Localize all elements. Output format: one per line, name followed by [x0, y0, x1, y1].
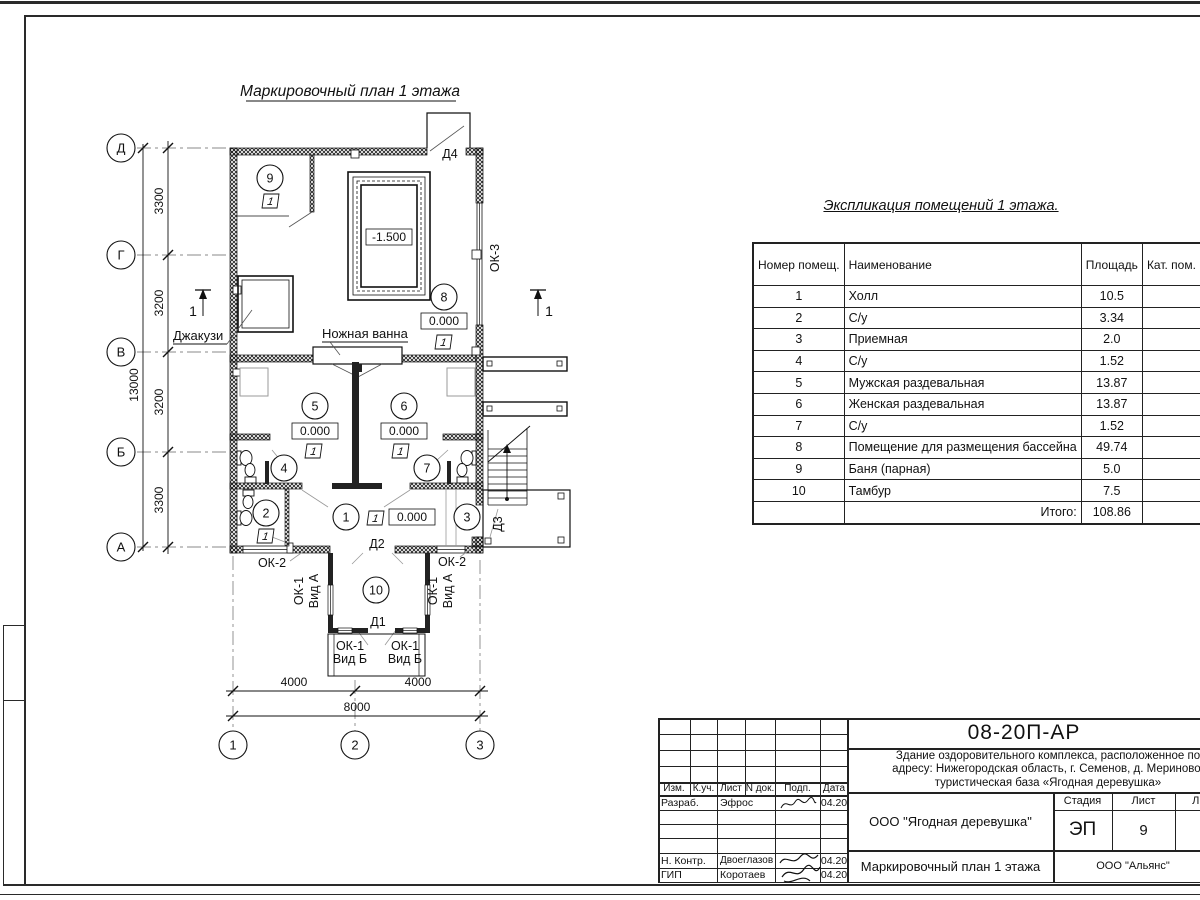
tb-date-nkontr: 04.20: [820, 853, 848, 868]
axis-label-2: 2: [351, 738, 358, 753]
toilet-bowl: [243, 496, 253, 509]
svg-text:Джакузи: Джакузи: [173, 328, 223, 343]
window-ok3-label: ОК-3: [488, 244, 502, 272]
window-ok1a-left-label1: ОК-1: [292, 577, 306, 605]
tb-role-razrab: Разраб.: [658, 795, 720, 810]
sink: [240, 511, 252, 526]
axis-bubbles-bottom: 1 2 3: [219, 731, 494, 759]
sheets-header: Листов: [1175, 792, 1200, 810]
contractor-organization: ООО "Альянс": [1053, 850, 1200, 882]
tb-col-kuch: К.уч.: [690, 782, 717, 795]
sheet-header: Лист: [1112, 792, 1175, 810]
table-row: 2С/у3.34: [753, 307, 1200, 329]
drawing-name: Маркировочный план 1 этажа: [848, 850, 1053, 882]
svg-text:Ножная ванна: Ножная ванна: [322, 326, 409, 341]
dim-bottom-2: 4000: [405, 675, 432, 689]
window-ok1a-right-label2: Вид А: [441, 573, 455, 608]
dim-left-2: 3200: [152, 289, 166, 316]
toilet-tank: [245, 477, 256, 483]
project-description: Здание оздоровительного комплекса, распо…: [848, 748, 1200, 792]
door-d4-label: Д4: [442, 147, 457, 161]
dim-left-4: 3300: [152, 486, 166, 513]
svg-text:2: 2: [263, 507, 270, 521]
svg-text:4: 4: [281, 462, 288, 476]
total-label: Итого:: [844, 501, 1081, 523]
svg-text:-1.500: -1.500: [372, 230, 406, 244]
window-ok3: [472, 203, 482, 325]
table-row: 9Баня (парная)5.0: [753, 458, 1200, 480]
window-ok2-right: [437, 546, 465, 553]
tb-date-gip: 04.20: [820, 868, 848, 882]
table-row: 7С/у1.52: [753, 415, 1200, 437]
tb-col-izm: Изм.: [658, 782, 690, 795]
toilet-bowl: [245, 464, 255, 477]
svg-text:1: 1: [343, 511, 350, 525]
svg-text:0.000: 0.000: [300, 424, 330, 438]
table-row: 8Помещение для размещения бассейна49.74: [753, 437, 1200, 459]
svg-text:Д2: Д2: [369, 537, 384, 551]
svg-text:5: 5: [312, 400, 319, 414]
svg-text:0.000: 0.000: [397, 510, 427, 524]
window-ok1a-right-label1: ОК-1: [426, 577, 440, 605]
dim-left-3: 3200: [152, 388, 166, 415]
total-value: 108.86: [1081, 501, 1142, 523]
benches: [483, 357, 567, 416]
axis-label-g: Г: [117, 248, 124, 263]
explication-title: Экспликация помещений 1 этажа.: [752, 198, 1130, 214]
svg-text:7: 7: [424, 462, 431, 476]
table-row: 3Приемная2.0: [753, 329, 1200, 351]
tb-name-razrab: Эфрос: [717, 795, 778, 810]
jacuzzi-label: Джакузи: [173, 310, 252, 344]
dim-left-1: 3300: [152, 187, 166, 214]
svg-text:3: 3: [464, 511, 471, 525]
toilet-tank: [457, 477, 468, 483]
title-block: Изм. К.уч. Лист N док. Подп. Дата Разраб…: [658, 718, 1200, 883]
axis-bubbles-left: Д Г В Б А: [107, 134, 135, 561]
svg-text:1: 1: [189, 303, 197, 319]
axis-label-a: А: [117, 540, 126, 555]
client-organization: ООО "Ягодная деревушка": [848, 792, 1053, 850]
stage-header: Стадия: [1053, 792, 1112, 810]
shower-tray-right: [447, 368, 475, 396]
window-ok1b-left-label1: ОК-1: [336, 639, 364, 653]
col-header-number: Номер помещ.: [753, 243, 844, 286]
tb-col-podp: Подп.: [775, 782, 820, 795]
sheet-number: 9: [1112, 810, 1175, 850]
svg-text:0.000: 0.000: [389, 424, 419, 438]
svg-text:10: 10: [369, 584, 383, 598]
document-number: 08-20П-АР: [848, 718, 1200, 748]
tb-col-list: Лист: [717, 782, 745, 795]
door-d3-label: Д3: [491, 516, 505, 531]
axis-label-d: Д: [117, 141, 126, 156]
window-ok1b-left-label2: Вид Б: [333, 652, 367, 666]
dim-left-total: 13000: [127, 368, 141, 402]
door-d2-label: Д2: [363, 536, 391, 551]
stairs: [488, 426, 530, 505]
tb-date-razrab: 04.20: [820, 795, 848, 810]
table-total-row: Итого:108.86: [753, 501, 1200, 523]
table-row: 10Тамбур7.5: [753, 480, 1200, 502]
explication-table: Номер помещ. Наименование Площадь Кат. п…: [752, 242, 1200, 525]
toilet-bowl: [457, 464, 467, 477]
tb-col-data: Дата: [820, 782, 848, 795]
svg-text:0.000: 0.000: [429, 314, 459, 328]
bottom-dimensions: 4000 4000 8000: [226, 675, 488, 721]
axis-label-b: Б: [117, 445, 126, 460]
svg-text:8: 8: [441, 291, 448, 305]
tb-name-gip: Коротаев: [717, 868, 778, 882]
dim-bottom-total: 8000: [344, 700, 371, 714]
drawing-sheet: Маркировочный план 1 этажа: [0, 0, 1200, 900]
window-ok2-left-label: ОК-2: [258, 556, 286, 570]
pool-level-mark: -1.500: [366, 229, 412, 245]
window-ok1b-right-label1: ОК-1: [391, 639, 419, 653]
shower-tray-left: [240, 368, 268, 396]
col-header-area: Площадь: [1081, 243, 1142, 286]
signature: [776, 851, 822, 885]
axis-label-v: В: [117, 345, 126, 360]
axis-label-3: 3: [476, 738, 483, 753]
stage-value: ЭП: [1053, 810, 1112, 850]
axis-label-1: 1: [229, 738, 236, 753]
table-row: 5Мужская раздевальная13.87: [753, 372, 1200, 394]
door-d1-label: Д1: [370, 615, 385, 629]
table-row: 4С/у1.52: [753, 350, 1200, 372]
jacuzzi: [238, 276, 293, 332]
section-mark-left: 1: [189, 289, 211, 319]
table-row: 1Холл10.5: [753, 286, 1200, 308]
signature: [778, 796, 818, 812]
col-header-name: Наименование: [844, 243, 1081, 286]
section-mark-right: 1: [530, 289, 553, 319]
plan-title: Маркировочный план 1 этажа: [240, 83, 460, 100]
dim-bottom-1: 4000: [281, 675, 308, 689]
door-d4: Д4: [427, 113, 470, 161]
svg-text:9: 9: [267, 172, 274, 186]
window-ok1a-left-label2: Вид А: [307, 573, 321, 608]
tb-role-nkontr: Н. Контр.: [658, 853, 720, 868]
svg-text:1: 1: [545, 303, 553, 319]
svg-text:6: 6: [401, 400, 408, 414]
col-header-category: Кат. пом.: [1142, 243, 1200, 286]
tb-col-ndok: N док.: [745, 782, 775, 795]
table-row: 6Женская раздевальная13.87: [753, 393, 1200, 415]
tb-role-gip: ГИП: [658, 868, 720, 882]
window-ok2-right-label: ОК-2: [438, 555, 466, 569]
tb-name-nkontr: Двоеглазов: [717, 853, 778, 868]
window-ok1b-right-label2: Вид Б: [388, 652, 422, 666]
